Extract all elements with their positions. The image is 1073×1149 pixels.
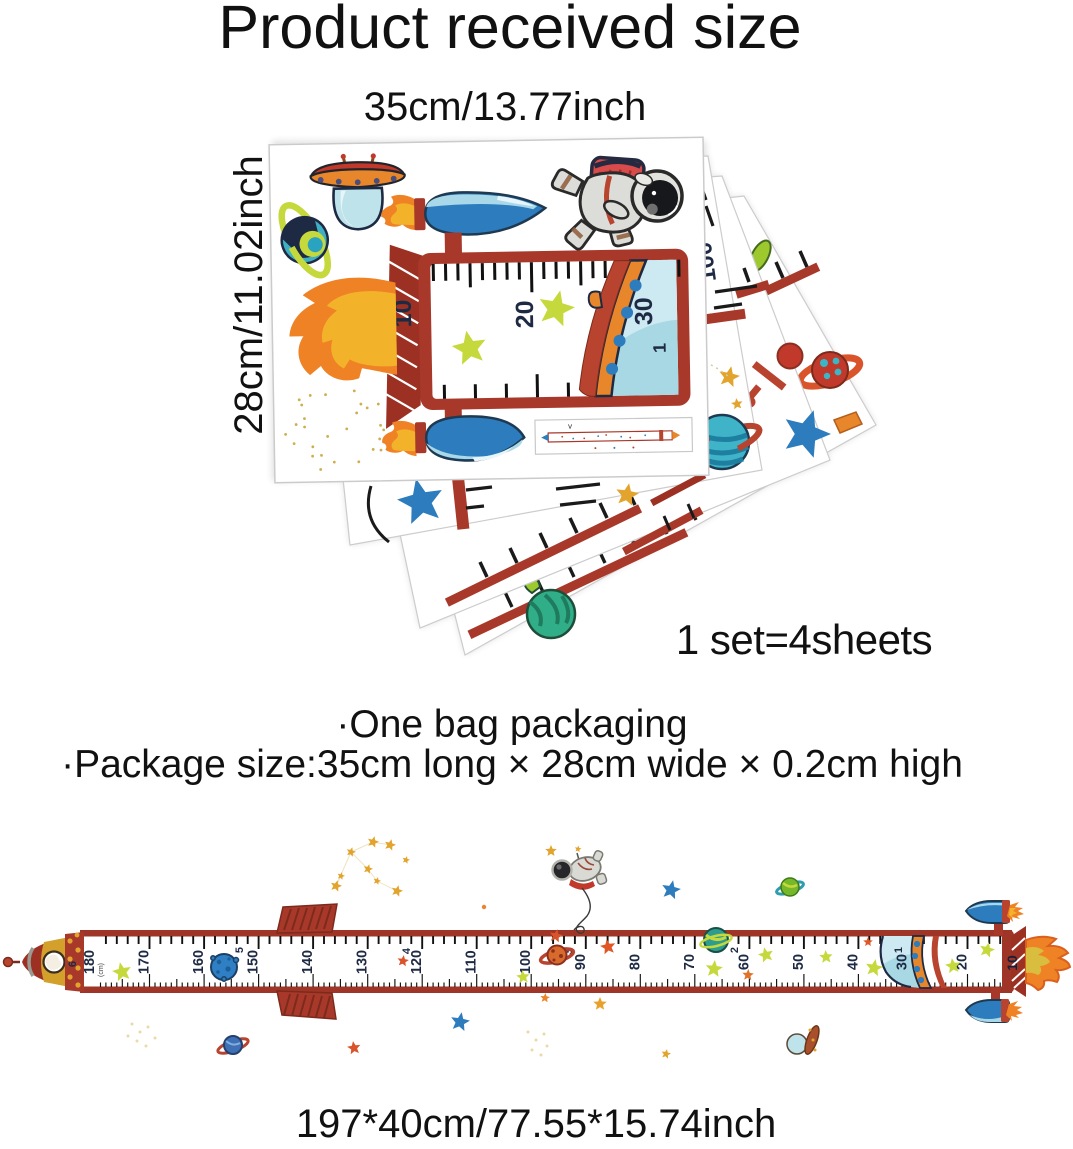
svg-text:6: 6 [67, 961, 79, 967]
svg-text:160: 160 [191, 950, 207, 974]
svg-text:20: 20 [511, 300, 539, 328]
svg-text:35cm/13.77inch: 35cm/13.77inch [364, 85, 646, 129]
svg-text:60: 60 [736, 954, 752, 970]
svg-text:5: 5 [234, 947, 246, 953]
svg-text:180: 180 [82, 950, 98, 974]
svg-text:(cm): (cm) [98, 963, 105, 977]
svg-text:Product received size: Product received size [218, 0, 801, 61]
svg-text:40: 40 [845, 954, 861, 970]
svg-text:1 set=4sheets: 1 set=4sheets [676, 616, 932, 663]
svg-text:1: 1 [650, 343, 670, 353]
svg-text:·Package size:35cm long × 28cm: ·Package size:35cm long × 28cm wide × 0.… [61, 743, 963, 786]
svg-text:v: v [568, 422, 572, 431]
svg-text:170: 170 [137, 950, 153, 974]
svg-text:30: 30 [630, 297, 658, 325]
svg-text:50: 50 [791, 954, 807, 970]
svg-text:10: 10 [1004, 955, 1020, 971]
svg-text:130: 130 [355, 950, 371, 974]
svg-text:110: 110 [464, 950, 480, 973]
svg-text:70: 70 [682, 954, 698, 970]
svg-text:100: 100 [518, 950, 534, 974]
svg-text:1: 1 [893, 947, 905, 953]
svg-text:2: 2 [729, 947, 741, 953]
svg-text:30: 30 [895, 954, 911, 970]
svg-text:90: 90 [573, 954, 589, 970]
svg-text:197*40cm/77.55*15.74inch: 197*40cm/77.55*15.74inch [296, 1102, 776, 1146]
svg-text:80: 80 [627, 954, 643, 970]
svg-text:28cm/11.02inch: 28cm/11.02inch [227, 155, 271, 434]
svg-text:150: 150 [246, 950, 262, 974]
svg-text:140: 140 [300, 950, 316, 974]
svg-text:·One bag packaging: ·One bag packaging [336, 703, 687, 746]
svg-text:4: 4 [401, 947, 413, 954]
